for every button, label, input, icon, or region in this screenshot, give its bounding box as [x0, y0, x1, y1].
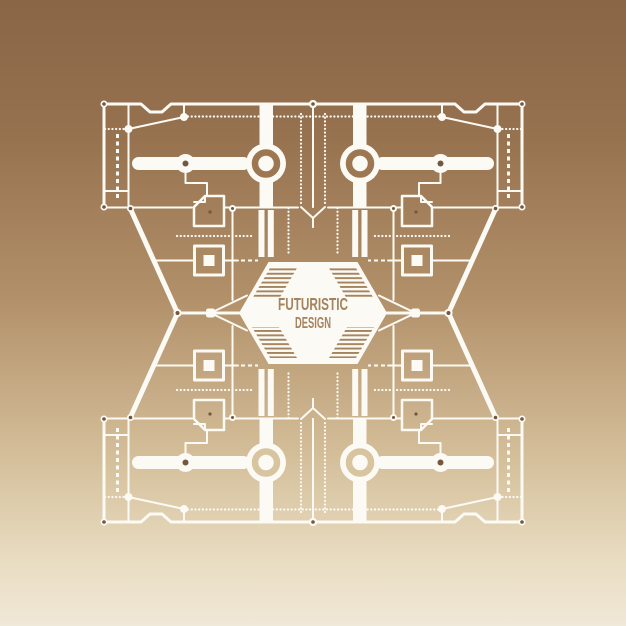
poster-title-line1: FUTURISTIC — [278, 294, 348, 314]
poster-title-line2: DESIGN — [295, 315, 331, 332]
futuristic-design-poster: FUTURISTIC DESIGN — [0, 0, 626, 626]
hexagon-badge: FUTURISTIC DESIGN — [239, 262, 387, 364]
schematic-artwork: FUTURISTIC DESIGN — [0, 0, 626, 626]
